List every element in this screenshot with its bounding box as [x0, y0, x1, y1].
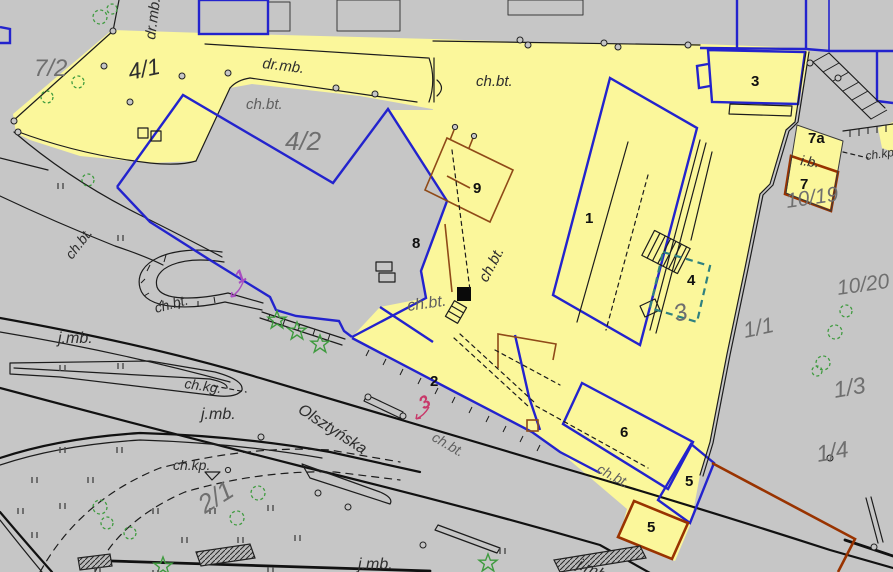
building-label-2: 2 — [430, 373, 438, 390]
surface-label-chbt-2: ch.bt. — [476, 73, 513, 90]
building-label-5b: 5 — [647, 519, 655, 536]
surface-label-jmb-1: j.mb. — [56, 330, 93, 347]
map-svg: 7/2 4/1 4/2 1/1 1/3 1/4 2/1 10/19 10/20 … — [0, 0, 893, 572]
building-label-9: 9 — [473, 180, 481, 197]
utility-structure — [457, 287, 471, 301]
surface-label-chbt-1: ch.bt. — [246, 96, 283, 113]
building-label-6: 6 — [620, 424, 628, 441]
building-label-7: 7 — [800, 176, 808, 193]
parcel-label-1-3: 1/3 — [831, 372, 867, 403]
building-label-4: 4 — [687, 272, 696, 289]
building-label-1: 1 — [585, 210, 593, 227]
surface-label-chkp: ch.kp. — [173, 457, 210, 473]
cadastral-map-canvas: 7/2 4/1 4/2 1/1 1/3 1/4 2/1 10/19 10/20 … — [0, 0, 893, 572]
parcel-label-1-4: 1/4 — [814, 436, 850, 467]
building-label-8: 8 — [412, 235, 420, 252]
surface-label-jmb-3: j.mb. — [356, 556, 393, 572]
parcel-label-7-2: 7/2 — [34, 55, 67, 82]
surface-label-ib: i.b. — [800, 152, 821, 170]
building-label-7a: 7a — [808, 130, 825, 147]
parcel-label-4-2: 4/2 — [285, 126, 322, 156]
surface-label-jmb-2: j.mb. — [199, 406, 236, 423]
building-label-5: 5 — [685, 473, 693, 490]
building-label-3: 3 — [751, 73, 759, 90]
